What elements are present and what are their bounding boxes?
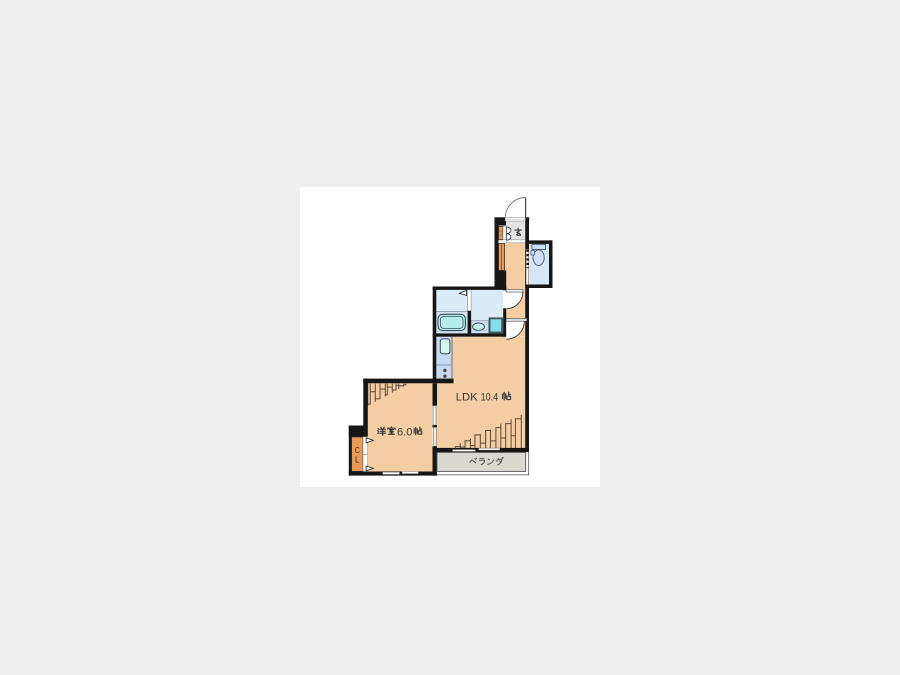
svg-text:C: C bbox=[355, 446, 360, 455]
svg-text:6.0: 6.0 bbox=[397, 426, 413, 438]
svg-text:L: L bbox=[355, 456, 360, 465]
svg-text:LDK: LDK bbox=[456, 391, 478, 403]
svg-text:10.4: 10.4 bbox=[481, 391, 499, 403]
